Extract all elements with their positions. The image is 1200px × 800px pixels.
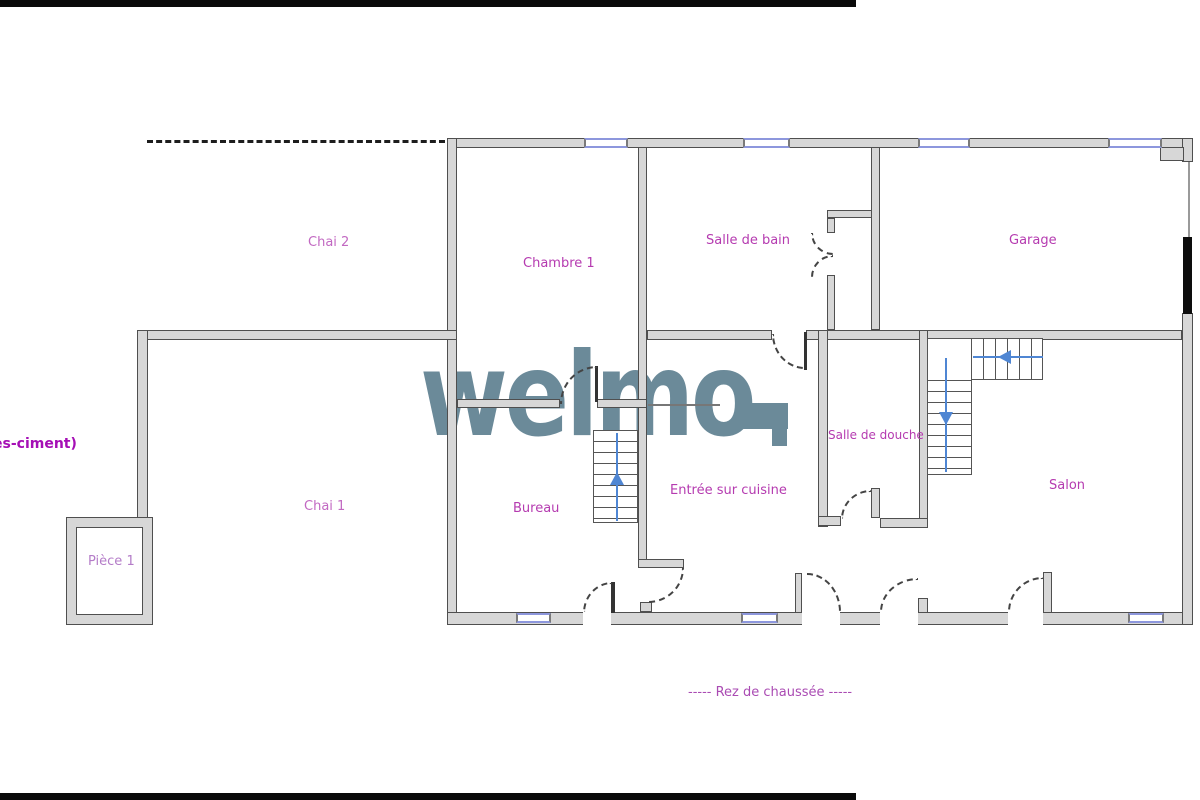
letterbox-bar-bottom — [0, 793, 856, 800]
welmo-logo-key-bar — [738, 403, 788, 429]
door-arc-hall — [648, 568, 684, 603]
window-garage-1 — [918, 138, 970, 148]
door-arc-hall-south — [880, 578, 918, 612]
door-arc-closet-lower — [811, 255, 833, 277]
kitchen-counter-line — [648, 404, 720, 406]
door-gap-bureau — [583, 612, 611, 625]
door-arc-closet-upper — [811, 233, 833, 255]
door-leaf-hall-south — [918, 598, 928, 613]
stair-right-down-arrow — [939, 412, 953, 425]
room-label-salle-de-douche: Salle de douche — [828, 428, 924, 442]
wall-bureau-top-right — [597, 399, 647, 408]
window-bureau — [516, 613, 551, 623]
door-gap-entree-south — [802, 612, 840, 625]
door-leaf-salon-south — [1043, 572, 1052, 613]
wall-douche-bottom-right — [880, 518, 928, 528]
window-entree — [741, 613, 778, 623]
door-gap-hall-south — [880, 612, 918, 625]
room-label-bureau: Bureau — [513, 501, 559, 516]
door-arc-entree-south — [807, 573, 841, 612]
staircase-right-lower-run — [927, 380, 972, 475]
wall-garage-separator — [871, 147, 880, 330]
room-label-chambre-1: Chambre 1 — [523, 256, 595, 271]
door-arc-douche — [841, 490, 871, 519]
door-arc-salon-south — [1008, 577, 1043, 612]
window-salle-de-bain — [743, 138, 790, 148]
garage-door-black-bar — [1183, 237, 1192, 314]
door-arc-entree — [772, 334, 805, 369]
wall-exterior-top — [447, 138, 1193, 148]
room-label-salle-de-bain: Salle de bain — [706, 233, 790, 248]
welmo-logo-key-tab — [772, 427, 787, 446]
wall-entree-top-left — [647, 330, 772, 340]
wall-exterior-left — [447, 138, 457, 622]
floor-plan: welmo — [0, 0, 1200, 800]
room-label-piece-1: Pièce 1 — [88, 554, 135, 569]
wall-chai-left — [137, 330, 148, 522]
floor-caption: ----- Rez de chaussée ----- — [688, 685, 852, 700]
wall-closet-left-upper — [827, 218, 835, 233]
wall-corner-block — [1160, 147, 1184, 161]
wall-closet-left-lower — [827, 275, 835, 330]
wall-douche-bottom-left — [818, 516, 841, 526]
wall-bureau-top-left — [457, 399, 560, 408]
window-salon — [1128, 613, 1164, 623]
room-label-garage: Garage — [1009, 233, 1057, 248]
door-gap-salon — [1008, 612, 1043, 625]
door-arc-bureau-south — [583, 582, 612, 613]
letterbox-bar-top — [0, 0, 856, 7]
wall-chambre-entree-divider — [638, 147, 647, 568]
stair-center-up-arrow — [610, 472, 624, 485]
piece1-interior — [76, 527, 143, 615]
room-label-chai-1: Chai 1 — [304, 499, 345, 514]
wall-hall-foot — [640, 602, 652, 612]
wall-chai-top — [137, 330, 457, 340]
wall-douche-left — [818, 330, 828, 527]
wall-hall-stub — [638, 559, 684, 568]
dashed-boundary-line — [147, 140, 445, 143]
garage-opening-line — [1188, 160, 1190, 238]
room-label-salon: Salon — [1049, 478, 1085, 493]
wall-exterior-right-main — [1182, 313, 1193, 625]
door-leaf-entree-south — [795, 573, 802, 613]
stair-right-left-arrow — [998, 350, 1011, 364]
wall-closet-top — [827, 210, 877, 218]
room-label-chai-2: Chai 2 — [308, 235, 349, 250]
left-edge-clipped-text: es-ciment) — [0, 436, 77, 452]
staircase-right-landing — [927, 338, 972, 381]
door-leaf-douche — [871, 488, 880, 518]
window-garage-2 — [1108, 138, 1162, 148]
room-label-entree-sur-cuisine: Entrée sur cuisine — [670, 483, 787, 498]
window-chambre — [584, 138, 628, 148]
